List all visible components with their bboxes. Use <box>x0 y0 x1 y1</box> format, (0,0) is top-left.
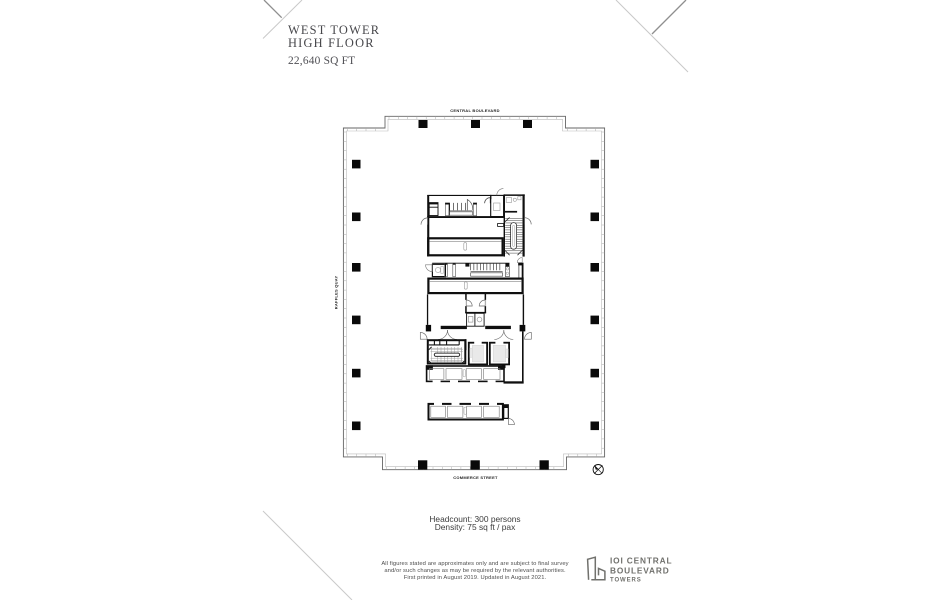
svg-text:IOI CENTRAL: IOI CENTRAL <box>610 556 672 566</box>
svg-text:COMMERCE STREET: COMMERCE STREET <box>453 475 498 480</box>
svg-text:TOWERS: TOWERS <box>610 578 642 584</box>
svg-text:CENTRAL BOULEVARD: CENTRAL BOULEVARD <box>450 108 499 113</box>
svg-text:BOULEVARD: BOULEVARD <box>610 566 670 576</box>
svg-text:RAFFLES QUAY: RAFFLES QUAY <box>334 275 339 309</box>
